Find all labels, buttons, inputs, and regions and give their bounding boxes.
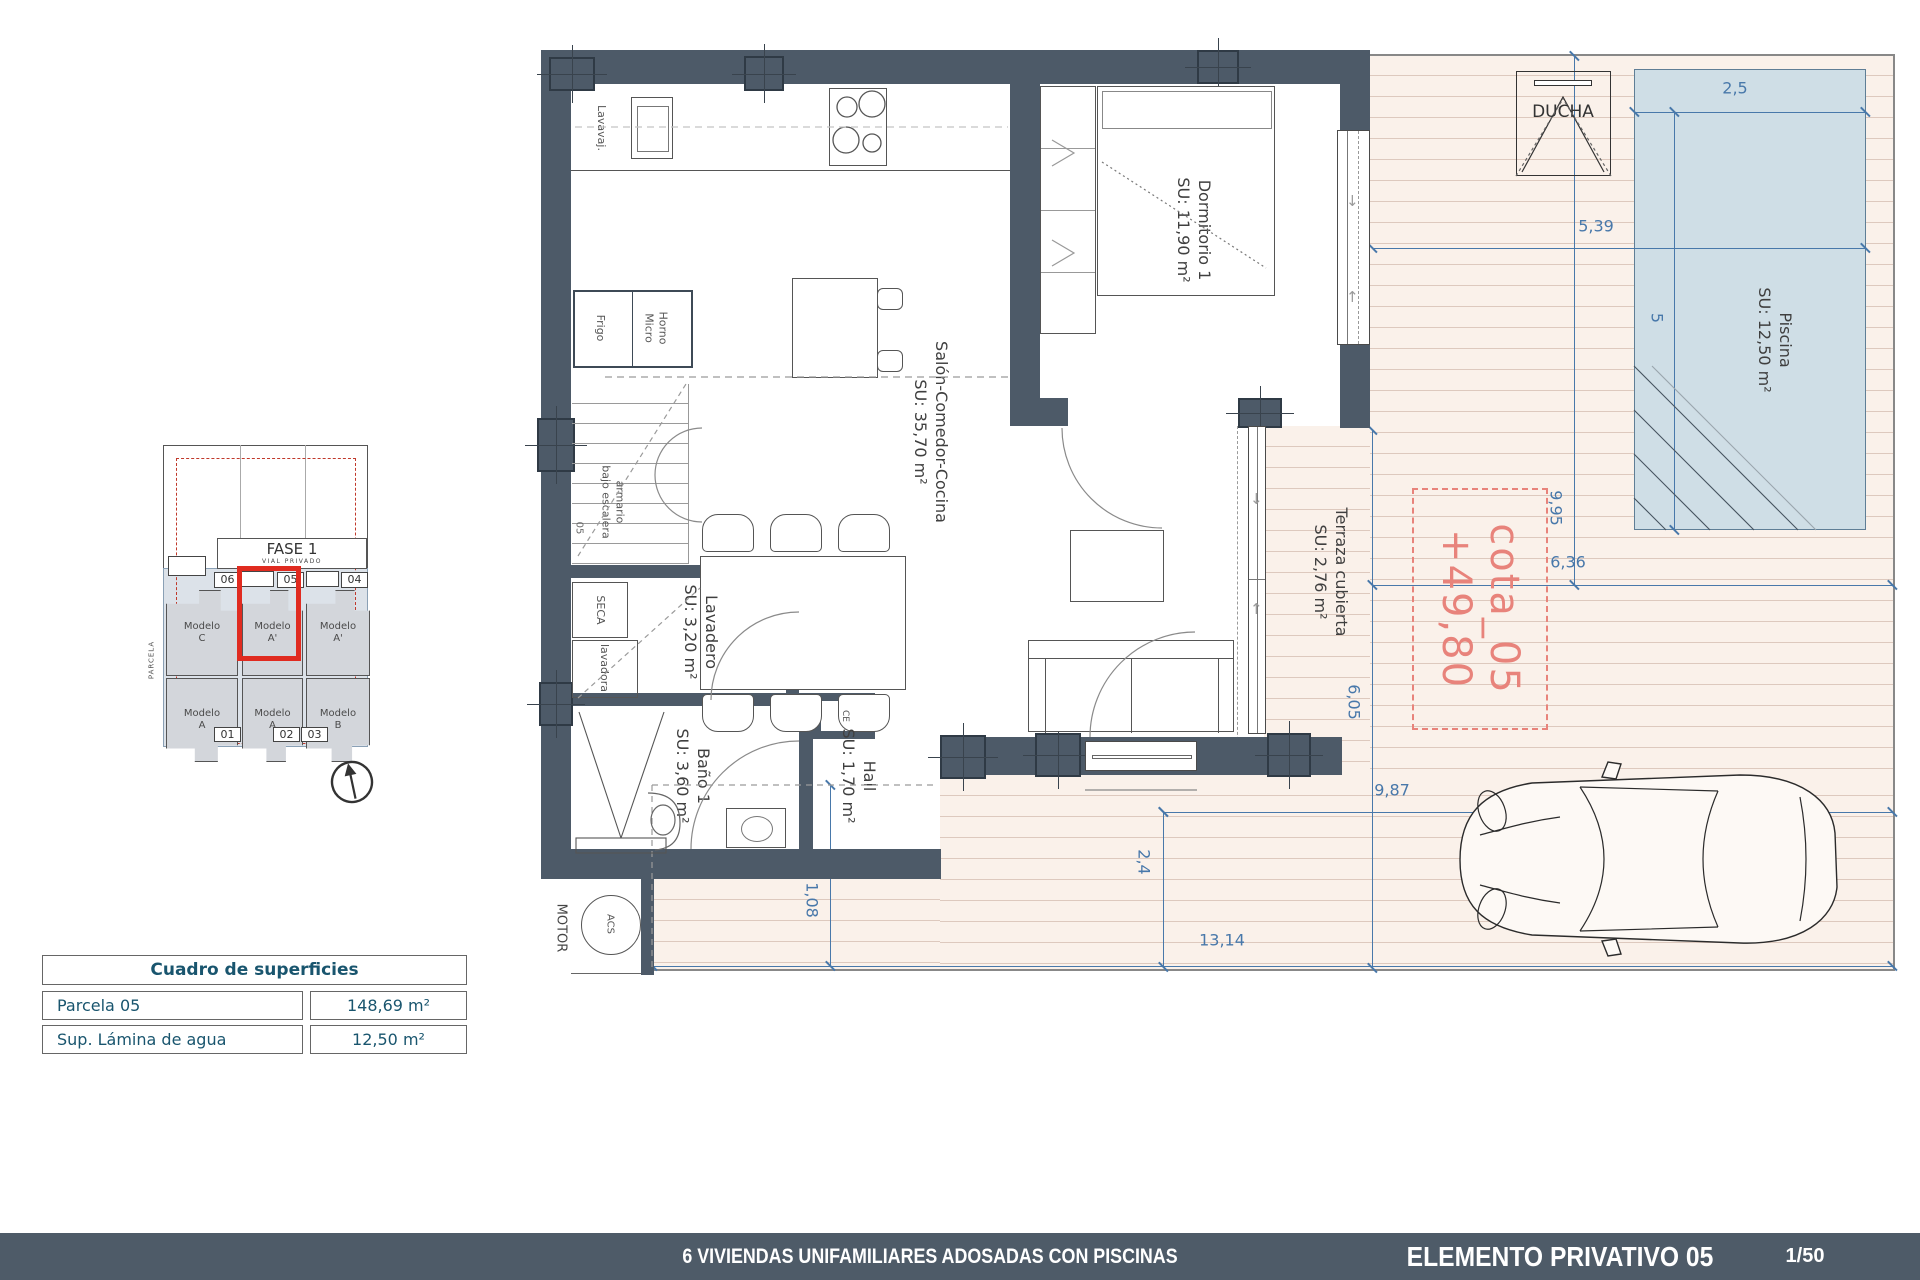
shower-bar xyxy=(1534,80,1592,86)
kitchen-sink xyxy=(631,97,673,159)
wall-motor-east xyxy=(641,879,654,975)
plot-tag-04: 04 xyxy=(341,572,368,588)
stair-number: 05 xyxy=(573,522,586,535)
dim-label: 1,08 xyxy=(803,882,822,918)
armario-label: armario bajo escalera xyxy=(598,465,627,538)
siteplan-entry xyxy=(168,556,206,576)
ducha-label: DUCHA xyxy=(1532,101,1594,123)
cooktop xyxy=(829,88,887,166)
entrance-door xyxy=(1085,741,1197,771)
room-label-dormitorio: Dormitorio 1 SU: 11,90 m² xyxy=(1172,177,1214,282)
frigo-label: Frigo xyxy=(593,315,607,342)
surfaces-table-header: Cuadro de superficies xyxy=(42,955,467,985)
structural-column xyxy=(1197,50,1239,84)
wall-kitchen-bedroom xyxy=(1010,84,1040,398)
sofa xyxy=(1028,640,1234,732)
surfaces-table-row-value: 148,69 m² xyxy=(310,991,467,1020)
plot-tag-03: 03 xyxy=(301,727,328,742)
surfaces-table-row-label: Sup. Lámina de agua xyxy=(42,1025,303,1054)
drawing-sheet: 2,5 5,39 5 9,95 6,36 6,05 9,87 2,4 13,14… xyxy=(0,0,1920,1280)
dining-chair xyxy=(838,514,890,552)
dining-chair xyxy=(702,514,754,552)
living-sliding-door xyxy=(1248,426,1266,734)
deck-boards-south xyxy=(940,775,1894,970)
wall-bedroom-east-upper xyxy=(1340,50,1370,134)
room-label-hall: Hall SU: 1,70 m² xyxy=(837,728,879,823)
lavadora-label: lavadora xyxy=(597,644,611,692)
stairs xyxy=(572,384,689,564)
scale-label: 1/50 xyxy=(1770,1233,1840,1280)
island-stool xyxy=(877,288,903,310)
project-title: 6 VIVIENDAS UNIFAMILIARES ADOSADAS CON P… xyxy=(590,1233,1270,1280)
dining-chair xyxy=(770,694,822,732)
horno-label: Horno Micro xyxy=(641,311,670,344)
structural-column xyxy=(537,418,575,472)
parcela-label: PARCELA xyxy=(147,641,156,679)
dim-line-plot-width xyxy=(652,966,1893,967)
dim-label: 2,5 xyxy=(1722,79,1747,98)
dim-line-deck-to-pool xyxy=(1372,248,1866,249)
site-unit-modelo-a4: ModeloA xyxy=(242,678,303,762)
deck-edge-bottom xyxy=(652,969,1894,971)
site-unit-modelo-b: ModeloB xyxy=(306,678,370,762)
toilet xyxy=(726,808,786,848)
structural-column xyxy=(1238,398,1282,428)
arrow-icon: ↓ xyxy=(1250,490,1263,510)
dim-label: 5,39 xyxy=(1578,217,1614,236)
roof-overhang-dashed xyxy=(1237,426,1238,775)
plot-tag-02: 02 xyxy=(273,727,300,742)
pool xyxy=(1634,69,1866,530)
room-label-salon: Salón-Comedor-Cocina SU: 35,70 m² xyxy=(909,341,951,523)
dim-line-drive-depth xyxy=(1163,812,1164,967)
motor-label: MOTOR xyxy=(552,904,569,953)
vial-privado-label: VIAL PRIVADO xyxy=(218,559,366,565)
kitchen-island xyxy=(792,278,878,378)
shower-pad xyxy=(1516,71,1611,176)
fase-label: FASE 1 xyxy=(218,539,366,559)
room-label-lavadero: Lavadero SU: 3,20 m² xyxy=(679,584,721,679)
siteplan-entry xyxy=(306,571,339,587)
dim-label: 9,95 xyxy=(1547,490,1566,526)
room-label-terraza: Terraza cubierta SU: 2,76 m² xyxy=(1309,508,1351,637)
arrow-icon: ↑ xyxy=(1346,288,1359,308)
north-compass-icon xyxy=(328,758,375,805)
room-label-piscina: Piscina SU: 12,50 m² xyxy=(1753,287,1795,392)
wardrobe xyxy=(1040,86,1096,334)
fridge-oven-unit xyxy=(573,290,693,368)
dim-label: 2,4 xyxy=(1135,849,1154,874)
dining-table xyxy=(700,556,906,690)
coffee-table xyxy=(1070,530,1164,602)
dim-line-drive-width xyxy=(1163,812,1893,813)
wall-bath-south xyxy=(541,849,941,879)
dim-line-pool-width xyxy=(1634,112,1866,113)
lavavajillas-label: Lavavaj. xyxy=(594,105,608,151)
acs-label: ACS xyxy=(604,914,617,934)
bedroom-window xyxy=(1337,130,1370,345)
site-unit-modelo-a3: ModeloA xyxy=(166,678,238,762)
island-stool xyxy=(877,350,903,372)
dim-label: 6,36 xyxy=(1550,553,1586,572)
seca-label: SECA xyxy=(593,595,607,624)
cota-label: cota_05 +49,80 xyxy=(1432,523,1528,695)
dim-label: 5 xyxy=(1648,313,1667,323)
deck-edge-right xyxy=(1893,54,1895,971)
dim-label: 13,14 xyxy=(1199,931,1245,950)
fase-box: FASE 1 VIAL PRIVADO xyxy=(217,538,367,569)
dining-chair xyxy=(770,514,822,552)
wall-bedroom-south xyxy=(1010,398,1068,426)
plot-tag-01: 01 xyxy=(214,727,241,742)
dim-label: 9,87 xyxy=(1374,781,1410,800)
sheet-title: ELEMENTO PRIVATIVO 05 xyxy=(1402,1233,1719,1280)
structural-column xyxy=(1267,733,1311,777)
structural-column xyxy=(940,735,986,779)
dining-chair xyxy=(702,694,754,732)
highlight-unit-05 xyxy=(237,566,301,661)
ce-label: CE xyxy=(838,710,850,722)
wall-bedroom-east-lower xyxy=(1340,342,1370,428)
structural-column xyxy=(1035,733,1081,777)
arrow-icon: ↑ xyxy=(1250,600,1263,620)
surfaces-table-row-label: Parcela 05 xyxy=(42,991,303,1020)
understair-storage xyxy=(576,712,666,853)
surfaces-table-row-value: 12,50 m² xyxy=(310,1025,467,1054)
dim-line-side-depth xyxy=(1372,430,1373,968)
dim-line-pool-length xyxy=(1674,112,1675,530)
structural-column xyxy=(539,682,573,726)
deck-edge-top xyxy=(1370,54,1894,56)
arrow-icon: ↓ xyxy=(1346,192,1359,212)
dim-label: 6,05 xyxy=(1345,684,1364,720)
room-label-bano: Baño 1 SU: 3,60 m² xyxy=(671,728,713,823)
